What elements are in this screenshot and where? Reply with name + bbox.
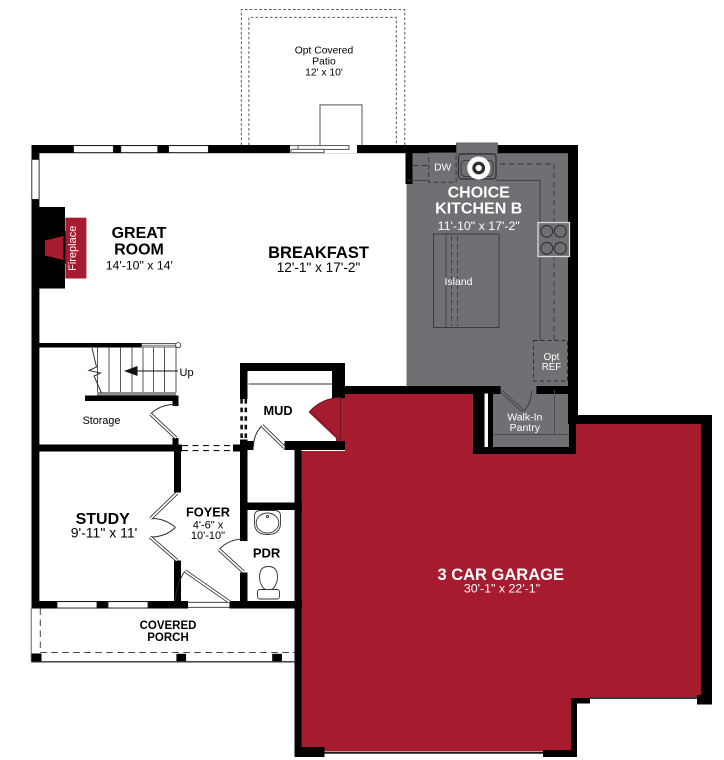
svg-text:Fireplace: Fireplace	[67, 226, 79, 271]
svg-text:CHOICE: CHOICE	[448, 184, 511, 201]
svg-text:GREAT: GREAT	[112, 225, 167, 242]
svg-text:Opt Covered: Opt Covered	[295, 46, 354, 57]
svg-text:DW: DW	[434, 163, 451, 174]
svg-text:MUD: MUD	[264, 403, 293, 418]
svg-text:PORCH: PORCH	[147, 632, 189, 644]
svg-text:Patio: Patio	[312, 57, 336, 68]
svg-text:Up: Up	[180, 367, 194, 379]
svg-text:COVERED: COVERED	[140, 620, 197, 632]
svg-text:FOYER: FOYER	[186, 505, 230, 520]
svg-text:REF: REF	[542, 362, 562, 373]
svg-text:12'-1" x 17'-2": 12'-1" x 17'-2"	[277, 260, 361, 275]
svg-text:Storage: Storage	[83, 415, 121, 427]
svg-text:14'-10" x 14': 14'-10" x 14'	[106, 259, 173, 273]
svg-text:12' x 10': 12' x 10'	[305, 68, 343, 79]
svg-text:ROOM: ROOM	[114, 241, 164, 258]
svg-text:11'-10" x 17'-2": 11'-10" x 17'-2"	[438, 219, 520, 233]
svg-text:KITCHEN B: KITCHEN B	[435, 200, 522, 217]
svg-text:PDR: PDR	[253, 546, 281, 561]
svg-text:Island: Island	[444, 276, 472, 288]
svg-text:10'-10": 10'-10"	[191, 530, 225, 542]
svg-text:9'-11" x 11': 9'-11" x 11'	[71, 525, 138, 541]
svg-text:Pantry: Pantry	[510, 422, 541, 434]
svg-text:30'-1" x 22'-1": 30'-1" x 22'-1"	[464, 582, 540, 596]
